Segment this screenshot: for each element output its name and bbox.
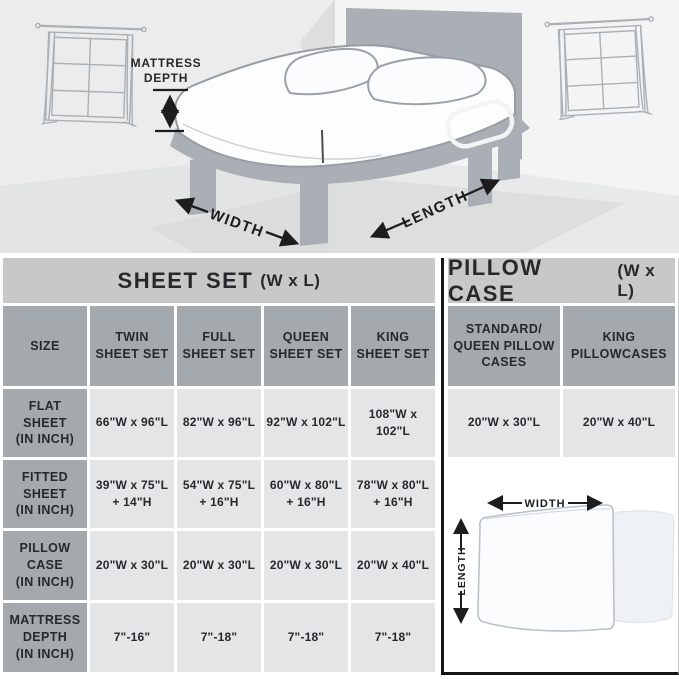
mattress-seam: [322, 130, 323, 163]
sheet-set-title-bar: SHEET SET (W x L): [3, 258, 435, 303]
bedroom-scene: WIDTH LENGTH MATTRESS DEPTH: [0, 0, 679, 253]
pillow-right: [368, 57, 485, 104]
pillow-width-label: WIDTH: [524, 498, 565, 510]
pillow-case-title-suffix: (W x L): [617, 261, 675, 301]
pillow-case-title-bar: PILLOW CASE (W x L): [448, 258, 675, 303]
column-header-size: SIZE: [3, 306, 87, 386]
bed-leg: [300, 177, 328, 246]
cell-pillowcase-twin: 20"W x 30"L: [90, 531, 174, 600]
pillow-front: [478, 505, 614, 631]
row-header-flat-sheet: FLAT SHEET (IN INCH): [3, 389, 87, 457]
cell-depth-full: 7"-18": [177, 603, 261, 672]
sheet-set-table: SIZE TWIN SHEET SET FULL SHEET SET QUEEN…: [3, 306, 435, 672]
cell-pillowcase-king: 20"W x 40"L: [351, 531, 435, 600]
cell-pillowcase-full: 20"W x 30"L: [177, 531, 261, 600]
pillow-back: [608, 511, 674, 623]
cell-pillowcase-queen: 20"W x 30"L: [264, 531, 348, 600]
cell-fitted-twin: 39"W x 75"L + 14"H: [90, 460, 174, 528]
cell-depth-queen: 7"-18": [264, 603, 348, 672]
cell-fitted-queen: 60"W x 80"L + 16"H: [264, 460, 348, 528]
cell-depth-king: 7"-18": [351, 603, 435, 672]
pillow-length-arrow: LENGTH: [456, 521, 468, 621]
bedroom-scene-illustration: WIDTH LENGTH: [0, 0, 679, 253]
column-header-standard-queen: STANDARD/ QUEEN PILLOW CASES: [448, 306, 560, 386]
pillow-length-label: LENGTH: [456, 546, 468, 595]
cell-fitted-full: 54"W x 75"L + 16"H: [177, 460, 261, 528]
cell-depth-twin: 7"-16": [90, 603, 174, 672]
row-header-pillow-case: PILLOW CASE (IN INCH): [3, 531, 87, 600]
sheet-set-panel: SHEET SET (W x L) SIZE TWIN SHEET SET FU…: [3, 258, 435, 672]
cell-flat-full: 82"W x 96"L: [177, 389, 261, 457]
column-header-king: KING SHEET SET: [351, 306, 435, 386]
bed-leg: [468, 143, 492, 207]
row-header-fitted-sheet: FITTED SHEET (IN INCH): [3, 460, 87, 528]
column-header-king-pillowcases: KING PILLOWCASES: [563, 306, 675, 386]
cell-fitted-king: 78"W x 80"L + 16"H: [351, 460, 435, 528]
cell-standard-queen-size: 20"W x 30"L: [448, 389, 560, 457]
column-header-twin: TWIN SHEET SET: [90, 306, 174, 386]
mattress-depth-label: MATTRESS DEPTH: [118, 56, 214, 86]
cell-flat-queen: 92"W x 102"L: [264, 389, 348, 457]
sheet-set-title-suffix: (W x L): [260, 271, 320, 291]
sheet-set-title: SHEET SET: [118, 268, 254, 294]
column-header-queen: QUEEN SHEET SET: [264, 306, 348, 386]
pillow-case-title: PILLOW CASE: [448, 255, 610, 307]
pillow-case-panel: PILLOW CASE (W x L) STANDARD/ QUEEN PILL…: [441, 258, 679, 675]
cell-flat-twin: 66"W x 96"L: [90, 389, 174, 457]
bedding-size-chart: WIDTH LENGTH MATTRESS DEPTH SHEET SET (W…: [0, 0, 679, 679]
headboard-post: [498, 146, 520, 181]
pillow-case-table: STANDARD/ QUEEN PILLOW CASES KING PILLOW…: [448, 306, 675, 457]
cell-flat-king: 108"W x 102"L: [351, 389, 435, 457]
row-header-mattress-depth: MATTRESS DEPTH (IN INCH): [3, 603, 87, 672]
cell-king-size: 20"W x 40"L: [563, 389, 675, 457]
column-header-full: FULL SHEET SET: [177, 306, 261, 386]
pillow-diagram: WIDTH LENGTH: [448, 459, 675, 669]
